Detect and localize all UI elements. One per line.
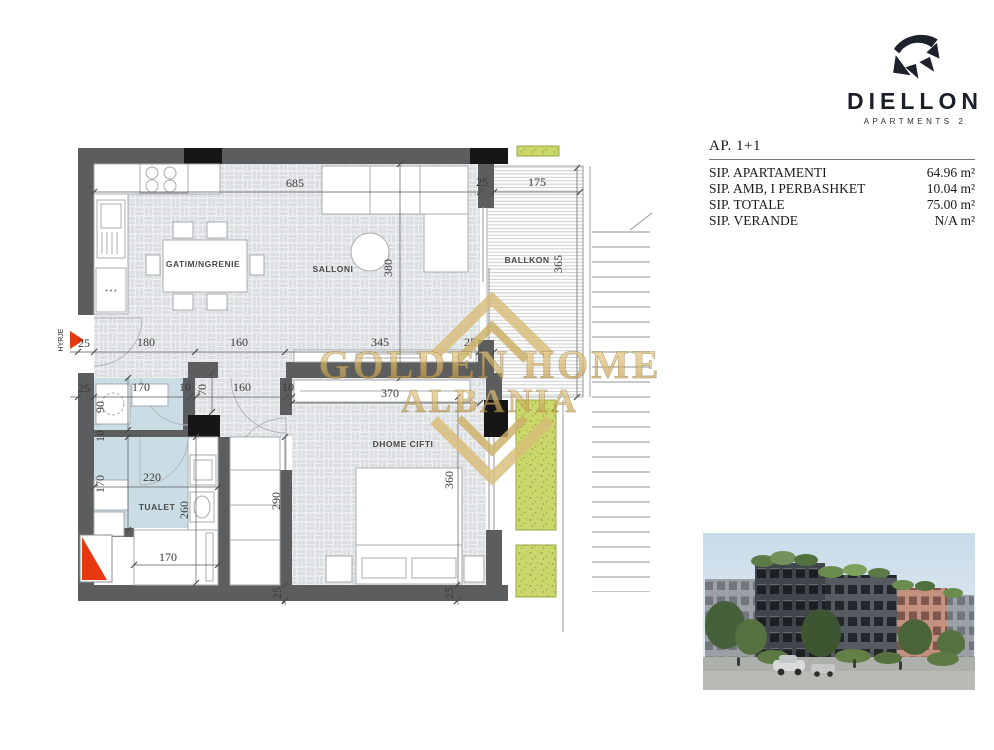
nightstand [326,556,352,582]
chair [207,294,227,310]
dimension-label: 260 [177,501,191,519]
watermark-line2: ALBANIA [401,383,579,420]
sofa [322,166,468,214]
dimension-label: 180 [137,335,155,349]
dimension-label: 170 [132,380,150,394]
info-value: N/A m² [935,213,975,229]
info-label: SIP. TOTALE [709,197,785,213]
room-label-bedroom: DHOME CIFTI [373,439,434,449]
dimension-label: 170 [159,550,177,564]
dimension-label: 370 [381,386,399,400]
dimension-label: 70 [195,384,209,396]
dimension-label: 290 [269,492,283,510]
pillow [362,558,406,578]
dimension-label: 25 [78,381,90,395]
dimension-label: 90 [93,401,107,413]
unit-title: AP. 1+1 [709,138,975,159]
info-label: SIP. VERANDE [709,213,798,229]
chair [207,222,227,238]
floor-plan: • • • [0,0,700,700]
dimension-label: 10 [282,380,294,394]
svg-text:• • •: • • • [105,288,117,295]
info-label: SIP. APARTAMENTI [709,165,827,181]
unit-info-table: AP. 1+1 SIP. APARTAMENTI 64.96 m² SIP. A… [709,138,975,229]
bath-cabinet [94,512,124,536]
dimension-label: 10 [179,380,191,394]
sofa-chaise [424,214,468,272]
room-label-bathroom: TUALET [139,502,176,512]
dimension-label: 10 [93,430,107,442]
dimension-label: 175 [528,175,546,189]
info-row: SIP. APARTAMENTI 64.96 m² [709,165,975,181]
info-value: 10.04 m² [927,181,975,197]
info-row: SIP. VERANDE N/A m² [709,213,975,229]
building-render-photo [703,533,975,690]
dimension-label: 25 [270,587,284,599]
dimension-label: 360 [442,471,456,489]
watermark-line1: GOLDEN HOME [318,342,661,387]
diellon-logo-icon [887,28,943,84]
info-row: SIP. TOTALE 75.00 m² [709,197,975,213]
dimension-label: 25 [78,336,90,350]
info-row: SIP. AMB, I PERBASHKET 10.04 m² [709,181,975,197]
nightstand [464,556,484,582]
info-label: SIP. AMB, I PERBASHKET [709,181,865,197]
brand-tagline: APARTMENTS 2 [845,117,985,126]
chair [173,222,193,238]
dimension-label: 685 [286,176,304,190]
stove [140,164,188,193]
entrance-label: HYRJE [58,328,65,351]
road [703,671,975,690]
room-label-balcony: BALLKON [504,255,549,265]
dimension-label: 220 [143,470,161,484]
planter-top [517,146,559,156]
dimension-label: 160 [230,335,248,349]
closet-slider [206,533,213,581]
dimension-label: 380 [381,259,395,277]
planter-right-small [516,545,556,597]
chair [250,255,264,275]
hall-closet [230,437,280,585]
dimension-label: 160 [233,380,251,394]
info-value: 64.96 m² [927,165,975,181]
dimension-label: 170 [93,475,107,493]
dimension-label: 25 [442,587,456,599]
room-label-kitchen-dining: GATIM/NGRENIE [166,259,240,269]
plan-sheet: • • • [0,0,994,750]
chair [173,294,193,310]
info-value: 75.00 m² [927,197,975,213]
brand-block: DIELLON APARTMENTS 2 [845,28,985,126]
room-label-living-room: SALLONI [313,264,354,274]
pillow [412,558,456,578]
dimension-label: 25 [476,175,488,189]
chair [146,255,160,275]
brand-name: DIELLON [845,88,985,115]
dimension-label: 365 [551,255,565,273]
divider [709,159,975,160]
